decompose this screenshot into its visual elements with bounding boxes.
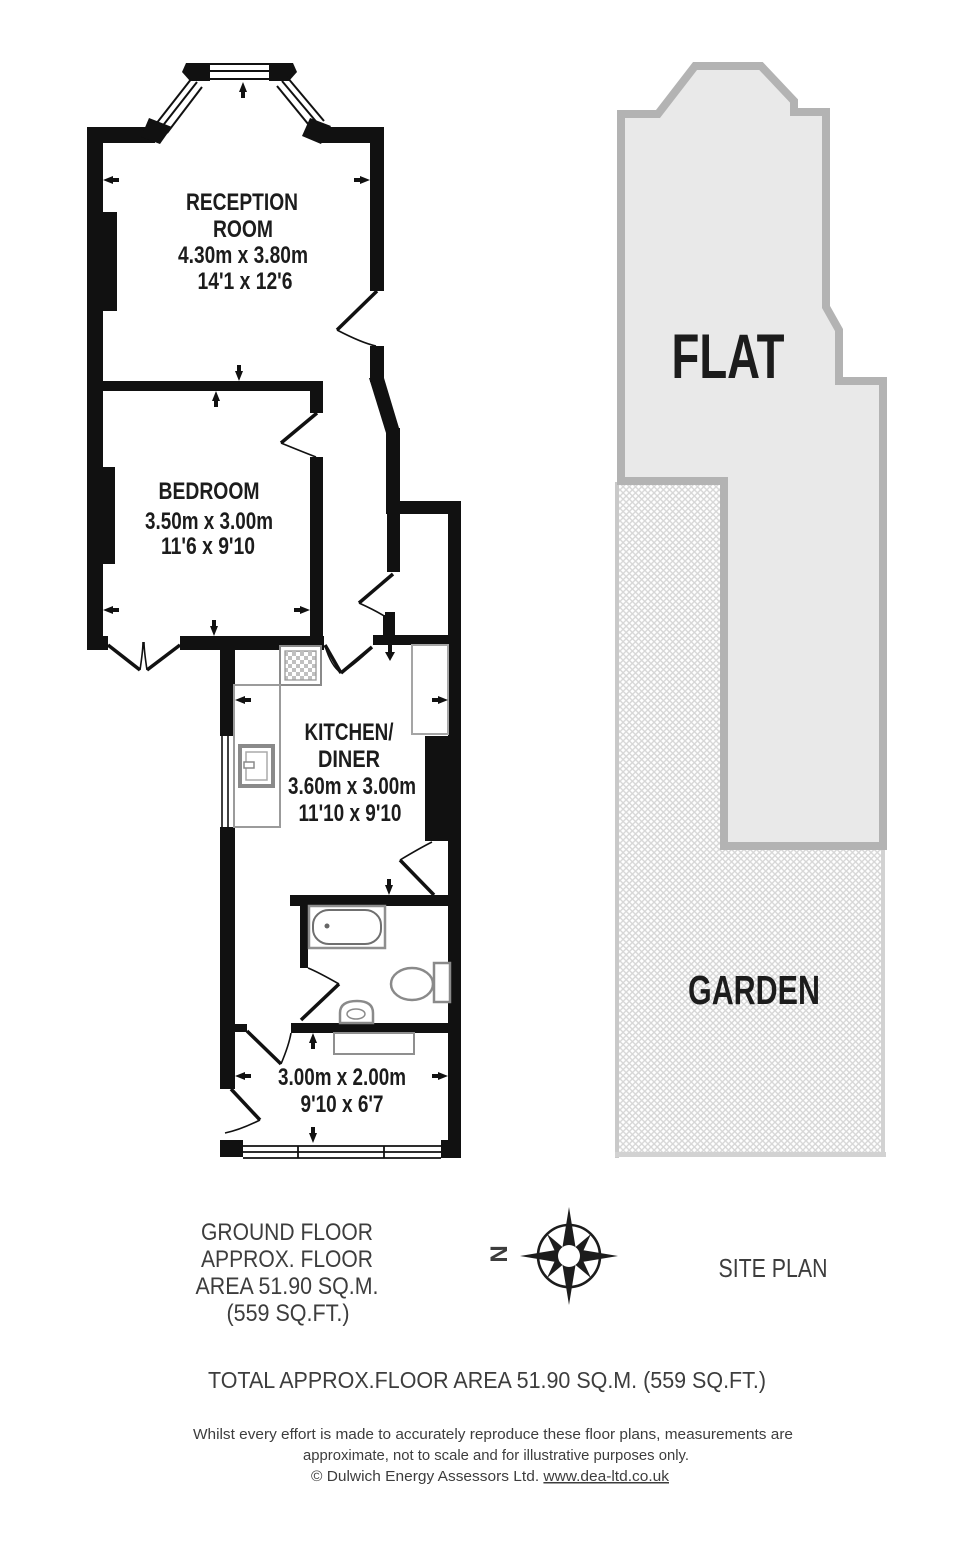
- svg-text:14'1 x 12'6: 14'1 x 12'6: [198, 268, 293, 295]
- svg-text:BEDROOM: BEDROOM: [159, 478, 260, 505]
- svg-text:KITCHEN/: KITCHEN/: [305, 719, 394, 746]
- svg-text:3.60m x 3.00m: 3.60m x 3.00m: [288, 773, 416, 800]
- svg-text:DINER: DINER: [318, 746, 380, 773]
- svg-text:3.00m x 2.00m: 3.00m x 2.00m: [278, 1064, 406, 1091]
- svg-text:© Dulwich Energy Assessors Lt: © Dulwich Energy Assessors Ltd. www.dea-…: [311, 1468, 670, 1485]
- svg-text:AREA 51.90 SQ.M.: AREA 51.90 SQ.M.: [196, 1273, 379, 1300]
- svg-text:SITE PLAN: SITE PLAN: [719, 1253, 828, 1283]
- svg-text:FLAT: FLAT: [672, 322, 785, 392]
- svg-text:Whilst every effort is made to: Whilst every effort is made to accuratel…: [193, 1426, 793, 1443]
- svg-text:9'10 x 6'7: 9'10 x 6'7: [301, 1091, 384, 1118]
- svg-text:approximate, not to scale and: approximate, not to scale and for illust…: [303, 1447, 689, 1464]
- svg-text:3.50m x 3.00m: 3.50m x 3.00m: [145, 508, 273, 535]
- svg-text:GARDEN: GARDEN: [688, 967, 820, 1013]
- svg-text:APPROX. FLOOR: APPROX. FLOOR: [201, 1246, 373, 1273]
- svg-text:N: N: [486, 1245, 513, 1262]
- svg-text:11'10 x 9'10: 11'10 x 9'10: [299, 800, 402, 827]
- svg-text:ROOM: ROOM: [213, 216, 273, 243]
- svg-text:RECEPTION: RECEPTION: [186, 189, 298, 216]
- svg-text:GROUND FLOOR: GROUND FLOOR: [201, 1219, 373, 1246]
- svg-text:4.30m x 3.80m: 4.30m x 3.80m: [178, 242, 308, 269]
- svg-text:(559 SQ.FT.): (559 SQ.FT.): [227, 1300, 350, 1327]
- svg-text:TOTAL APPROX.FLOOR AREA 51.90: TOTAL APPROX.FLOOR AREA 51.90 SQ.M. (559…: [208, 1367, 766, 1393]
- svg-text:11'6 x 9'10: 11'6 x 9'10: [161, 533, 255, 560]
